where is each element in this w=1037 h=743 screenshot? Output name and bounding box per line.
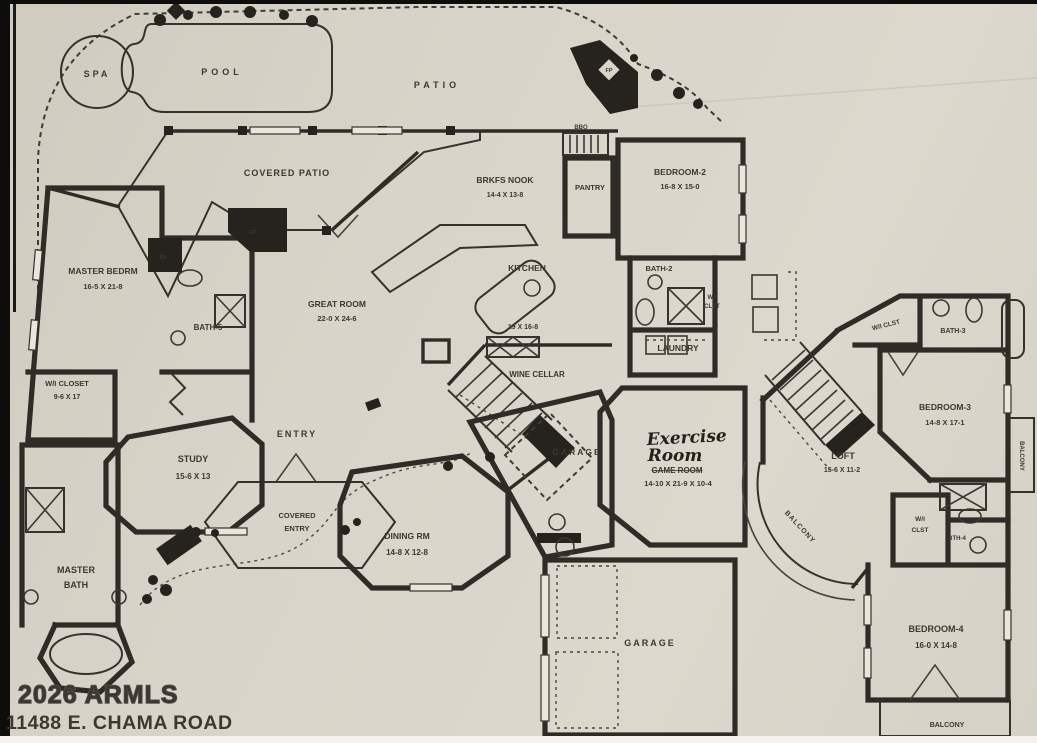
- label-wine-cellar: WINE CELLAR: [509, 370, 565, 379]
- label-exercise-dims: 14-10 X 21-9 X 10-4: [644, 479, 712, 488]
- label-study-dims: 15-6 X 13: [176, 472, 211, 481]
- label-garage-lower: GARAGE: [624, 638, 676, 648]
- balcony-bottom-shape: [880, 700, 1010, 736]
- floor-plan-svg: SPA POOL PATIO COVERED PATIO BBQ BRKFS N…: [0, 0, 1037, 743]
- label-bth4: BTH-4: [948, 536, 966, 542]
- label-bedroom2-dims: 16-8 X 15-0: [660, 182, 699, 191]
- label-brkfs-nook: BRKFS NOOK: [476, 175, 534, 185]
- label-garage-upper: GARAGE: [552, 447, 601, 457]
- label-great-room-dims: 22-0 X 24-6: [317, 314, 356, 323]
- label-balcony-bottom: BALCONY: [930, 722, 965, 729]
- label-covered-patio: COVERED PATIO: [244, 168, 330, 178]
- label-bedroom3: BEDROOM-3: [919, 402, 971, 412]
- label-wi-closet-master-dims: 9-6 X 17: [54, 394, 81, 401]
- fixtures: [24, 225, 1024, 674]
- label-bath5: BATH-5: [194, 323, 223, 332]
- label-balcony-right: BALCONY: [1018, 441, 1024, 471]
- label-kitchen-dims: 19 X 16-8: [508, 324, 538, 331]
- walls: [22, 126, 1035, 736]
- label-covered-entry-1: COVERED: [278, 511, 316, 520]
- label-master-bedroom: MASTER BEDRM: [68, 266, 137, 276]
- label-kitchen: KITCHEN: [508, 263, 546, 273]
- label-bath2: BATH-2: [646, 264, 673, 273]
- photo-edge-bottom: [0, 736, 1037, 743]
- label-loft: LOFT: [831, 451, 855, 461]
- label-wi-clst-bed2-1: W/I: [708, 295, 717, 301]
- label-great-room: GREAT ROOM: [308, 299, 366, 309]
- label-laundry: LAUNDRY: [657, 343, 699, 353]
- label-game-room-struck: GAME ROOM: [651, 466, 702, 475]
- label-bedroom2: BEDROOM-2: [654, 167, 706, 177]
- photo-edge-left: [0, 0, 10, 743]
- label-covered-entry-2: ENTRY: [284, 524, 309, 533]
- label-wi-closet-master: W/I CLOSET: [45, 379, 89, 388]
- fp-icon: FP: [159, 255, 166, 261]
- windows: [29, 127, 1011, 678]
- label-dining: DINING RM: [384, 531, 429, 541]
- label-bedroom4-dims: 16-0 X 14-8: [915, 641, 957, 650]
- label-spa: SPA: [84, 69, 111, 79]
- label-pantry: PANTRY: [575, 183, 605, 192]
- label-master-bath-1: MASTER: [57, 565, 96, 575]
- label-master-bath-2: BATH: [64, 580, 88, 590]
- fp-icon: FP: [249, 230, 256, 236]
- label-loft-dims: 15-6 X 11-2: [824, 467, 860, 474]
- address-text: 11488 E. CHAMA ROAD: [6, 712, 233, 734]
- hatched-areas: [118, 131, 480, 568]
- label-master-bedroom-dims: 16-5 X 21-8: [83, 282, 122, 291]
- label-exercise-hand-2: Room: [647, 446, 703, 466]
- label-wi-clst-bed4-1: W/I: [915, 516, 925, 523]
- fp-icon: FP: [605, 68, 612, 74]
- label-bedroom4: BEDROOM-4: [908, 624, 963, 634]
- label-bedroom3-dims: 14-8 X 17-1: [925, 418, 964, 427]
- label-bath3: BATH-3: [940, 328, 965, 335]
- label-brkfs-nook-dims: 14-4 X 13-8: [487, 192, 524, 199]
- label-pool: POOL: [201, 67, 243, 77]
- label-balcony-loft: BALCONY: [783, 510, 817, 545]
- balcony-arc: [758, 462, 858, 584]
- armls-watermark: 2026 ARMLS: [18, 681, 179, 709]
- label-bbq: BBQ: [574, 125, 588, 131]
- label-study: STUDY: [178, 454, 209, 464]
- label-wi-clst-bed3: W/I CLST: [871, 319, 900, 333]
- photo-edge-top: [0, 0, 1037, 4]
- label-entry: ENTRY: [277, 429, 317, 439]
- floor-plan-photo: SPA POOL PATIO COVERED PATIO BBQ BRKFS N…: [0, 0, 1037, 743]
- label-dining-dims: 14-8 X 12-8: [386, 548, 428, 557]
- label-wi-clst-bed2-2: CLST: [704, 304, 720, 310]
- label-patio: PATIO: [414, 80, 460, 90]
- label-wi-clst-bed4-2: CLST: [912, 527, 929, 534]
